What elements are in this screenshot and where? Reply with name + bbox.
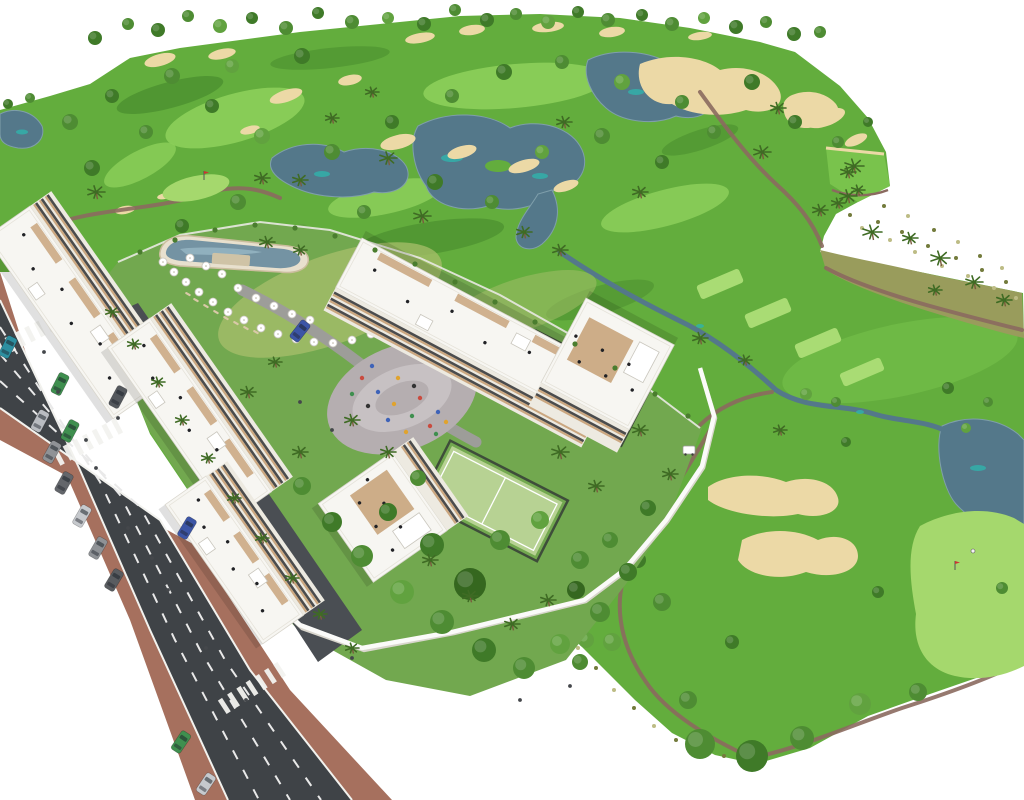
tree	[88, 31, 102, 45]
play-equipment	[412, 384, 416, 388]
tree	[151, 23, 165, 37]
hedge-bush	[292, 225, 297, 230]
parasol-umbrella	[257, 324, 265, 332]
play-equipment	[350, 392, 354, 396]
tree	[417, 17, 431, 31]
tree	[357, 205, 371, 219]
tree	[254, 128, 270, 144]
palm-tree	[903, 233, 918, 245]
tree	[725, 635, 739, 649]
hedge-bush	[252, 222, 257, 227]
tree	[841, 437, 851, 447]
crosswalk-stripe	[82, 434, 94, 450]
tree	[445, 89, 459, 103]
scrub-dot	[722, 754, 726, 758]
scrub-dot	[954, 256, 958, 260]
tree	[472, 638, 496, 662]
pedestrian	[244, 698, 248, 702]
tree	[294, 48, 310, 64]
play-equipment	[366, 404, 370, 408]
parasol-umbrella	[170, 268, 178, 276]
tree	[665, 17, 679, 31]
play-equipment	[376, 390, 380, 394]
scrub-dot	[980, 268, 984, 272]
play-equipment	[410, 414, 414, 418]
golfer	[971, 549, 975, 553]
tree	[510, 8, 522, 20]
crosswalk-stripe	[72, 439, 84, 455]
tree	[105, 89, 119, 103]
tree	[571, 551, 589, 569]
scrub-dot	[906, 214, 910, 218]
tree	[601, 13, 615, 27]
scrub-dot	[882, 204, 886, 208]
scrub-dot	[632, 706, 636, 710]
parasol-umbrella	[274, 330, 282, 338]
lake-island	[485, 160, 511, 172]
parasol-umbrella	[270, 302, 278, 310]
tree	[572, 654, 588, 670]
tree	[531, 511, 549, 529]
tree	[279, 21, 293, 35]
tree	[122, 18, 134, 30]
tree	[430, 610, 454, 634]
tree	[685, 729, 715, 759]
crosswalk-stripe	[24, 326, 36, 343]
tree	[182, 10, 194, 22]
scrub-dot	[576, 646, 580, 650]
tree	[312, 7, 324, 19]
tree	[164, 68, 180, 84]
parasol-umbrella	[234, 284, 242, 292]
tree	[485, 195, 499, 209]
tree	[379, 503, 397, 521]
play-equipment	[428, 424, 432, 428]
tree	[640, 500, 656, 516]
tree	[205, 99, 219, 113]
tree	[480, 13, 494, 27]
tree	[760, 16, 772, 28]
hedge-bush	[652, 391, 657, 396]
car	[50, 372, 70, 397]
tree	[849, 693, 871, 715]
tree	[942, 382, 954, 394]
tree	[139, 125, 153, 139]
tree	[345, 15, 359, 29]
crosswalk-stripe	[111, 418, 123, 434]
pedestrian	[150, 556, 154, 560]
pedestrian	[166, 588, 170, 592]
tree	[590, 602, 610, 622]
pedestrian	[568, 684, 572, 688]
play-equipment	[404, 430, 408, 434]
hedge-bush	[452, 279, 457, 284]
bunker-large	[738, 531, 858, 577]
tree	[603, 633, 621, 651]
tree	[175, 219, 189, 233]
pedestrian	[42, 350, 46, 354]
tree	[729, 20, 743, 34]
tree	[996, 582, 1008, 594]
tree	[653, 593, 671, 611]
pedestrian	[350, 656, 354, 660]
tree	[496, 64, 512, 80]
hedge-bush	[212, 227, 217, 232]
hedge-bush	[685, 413, 690, 418]
pedestrian	[126, 526, 130, 530]
tree	[814, 26, 826, 38]
pedestrian	[518, 698, 522, 702]
parasol-umbrella	[182, 278, 190, 286]
pedestrian	[330, 428, 334, 432]
scrub-dot	[932, 228, 936, 232]
parasol-umbrella	[159, 258, 167, 266]
scrub-dot	[900, 230, 904, 234]
hedge-bush	[372, 247, 377, 252]
tree	[614, 74, 630, 90]
tree	[351, 545, 373, 567]
parasol-umbrella	[329, 339, 337, 347]
parasol-umbrella	[218, 270, 226, 278]
parasol-umbrella	[195, 288, 203, 296]
tree	[872, 586, 884, 598]
pedestrian	[204, 646, 208, 650]
render-canvas	[0, 0, 1024, 800]
play-equipment	[360, 376, 364, 380]
tree	[390, 580, 414, 604]
tree	[230, 194, 246, 210]
scrub-dot	[848, 213, 852, 217]
hedge-bush	[572, 341, 577, 346]
tree	[246, 12, 258, 24]
tree	[572, 6, 584, 18]
pedestrian	[298, 400, 302, 404]
tree	[679, 691, 697, 709]
pedestrian	[94, 466, 98, 470]
tree	[831, 397, 841, 407]
scrub-dot	[612, 688, 616, 692]
tree	[550, 634, 570, 654]
tree	[225, 59, 239, 73]
parasol-umbrella	[310, 338, 318, 346]
tree	[420, 533, 444, 557]
tree	[84, 160, 100, 176]
parasol-umbrella	[224, 308, 232, 316]
tree	[25, 93, 35, 103]
scrub-dot	[1000, 266, 1004, 270]
scrub-dot	[966, 274, 970, 278]
tree	[555, 55, 569, 69]
scrub-dot	[1014, 296, 1018, 300]
tree	[541, 15, 555, 29]
tree	[744, 74, 760, 90]
tree	[787, 27, 801, 41]
putting-green	[911, 511, 1024, 678]
play-equipment	[386, 418, 390, 422]
hedge-bush	[532, 319, 537, 324]
scrub-dot	[594, 666, 598, 670]
pedestrian	[56, 390, 60, 394]
parasol-umbrella	[240, 316, 248, 324]
palm-tree	[931, 251, 950, 266]
parasol-umbrella	[348, 336, 356, 344]
tree	[322, 512, 342, 532]
golfer	[971, 549, 975, 553]
hedge-bush	[412, 261, 417, 266]
scrub-dot	[674, 738, 678, 742]
tree	[655, 155, 669, 169]
play-equipment	[444, 420, 448, 424]
tree	[410, 470, 426, 486]
scrub-dot	[926, 244, 930, 248]
crosswalk-stripe	[92, 429, 104, 445]
tree	[3, 99, 13, 109]
tree	[983, 397, 993, 407]
tree	[602, 532, 618, 548]
tree	[427, 174, 443, 190]
tree	[567, 581, 585, 599]
tree	[385, 115, 399, 129]
tree	[675, 95, 689, 109]
scrub-dot	[913, 250, 917, 254]
tree	[324, 144, 340, 160]
tree	[594, 128, 610, 144]
tree	[736, 740, 768, 772]
tree	[909, 683, 927, 701]
scrub-dot	[652, 724, 656, 728]
hedge-bush	[332, 233, 337, 238]
tree	[619, 563, 637, 581]
tree	[490, 530, 510, 550]
hedge-bush	[612, 365, 617, 370]
parasol-umbrella	[209, 298, 217, 306]
tree	[832, 136, 844, 148]
tree	[382, 12, 394, 24]
palm-tree	[863, 225, 882, 240]
tree	[790, 726, 814, 750]
pedestrian	[116, 416, 120, 420]
scrub-dot	[992, 286, 996, 290]
play-equipment	[418, 396, 422, 400]
scrub-dot	[956, 240, 960, 244]
pedestrian	[84, 438, 88, 442]
play-equipment	[434, 432, 438, 436]
tree	[800, 388, 812, 400]
tree	[62, 114, 78, 130]
tree	[535, 145, 549, 159]
scrub-dot	[1004, 280, 1008, 284]
tree	[863, 117, 873, 127]
tree	[513, 657, 535, 679]
tree	[698, 12, 710, 24]
play-equipment	[396, 376, 400, 380]
tree	[636, 9, 648, 21]
play-equipment	[392, 402, 396, 406]
tree	[788, 115, 802, 129]
play-equipment	[436, 410, 440, 414]
scrub-dot	[978, 254, 982, 258]
parasol-umbrella	[186, 254, 194, 262]
tree	[449, 4, 461, 16]
tree	[213, 19, 227, 33]
scrub-dot	[876, 220, 880, 224]
golf-cart	[683, 446, 695, 456]
tree	[293, 477, 311, 495]
tree	[961, 423, 971, 433]
parasol-umbrella	[202, 262, 210, 270]
play-equipment	[370, 364, 374, 368]
tree	[707, 125, 721, 139]
hedge-bush	[172, 237, 177, 242]
parasol-umbrella	[288, 310, 296, 318]
scrub-dot	[888, 238, 892, 242]
architectural-render	[0, 0, 1024, 800]
hedge-bush	[137, 249, 142, 254]
parasol-umbrella	[252, 294, 260, 302]
hedge-bush	[492, 299, 497, 304]
crosswalk-stripe	[101, 423, 113, 439]
